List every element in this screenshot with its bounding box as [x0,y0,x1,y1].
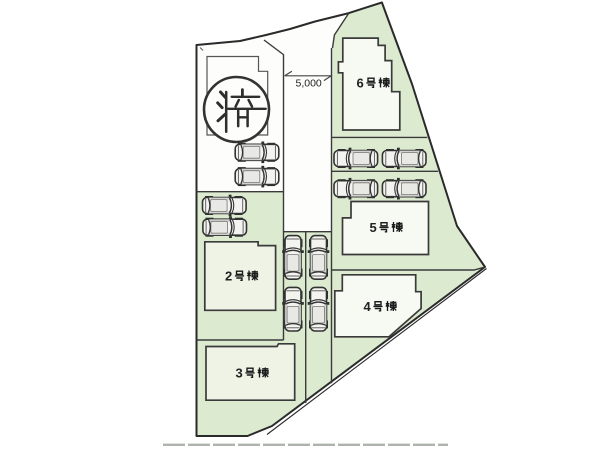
svg-text:4: 4 [364,299,372,314]
svg-text:6: 6 [357,76,364,91]
svg-text:3: 3 [236,366,243,381]
svg-text:5: 5 [370,220,377,235]
svg-text:2: 2 [225,269,232,284]
svg-text:5,000: 5,000 [296,78,322,90]
